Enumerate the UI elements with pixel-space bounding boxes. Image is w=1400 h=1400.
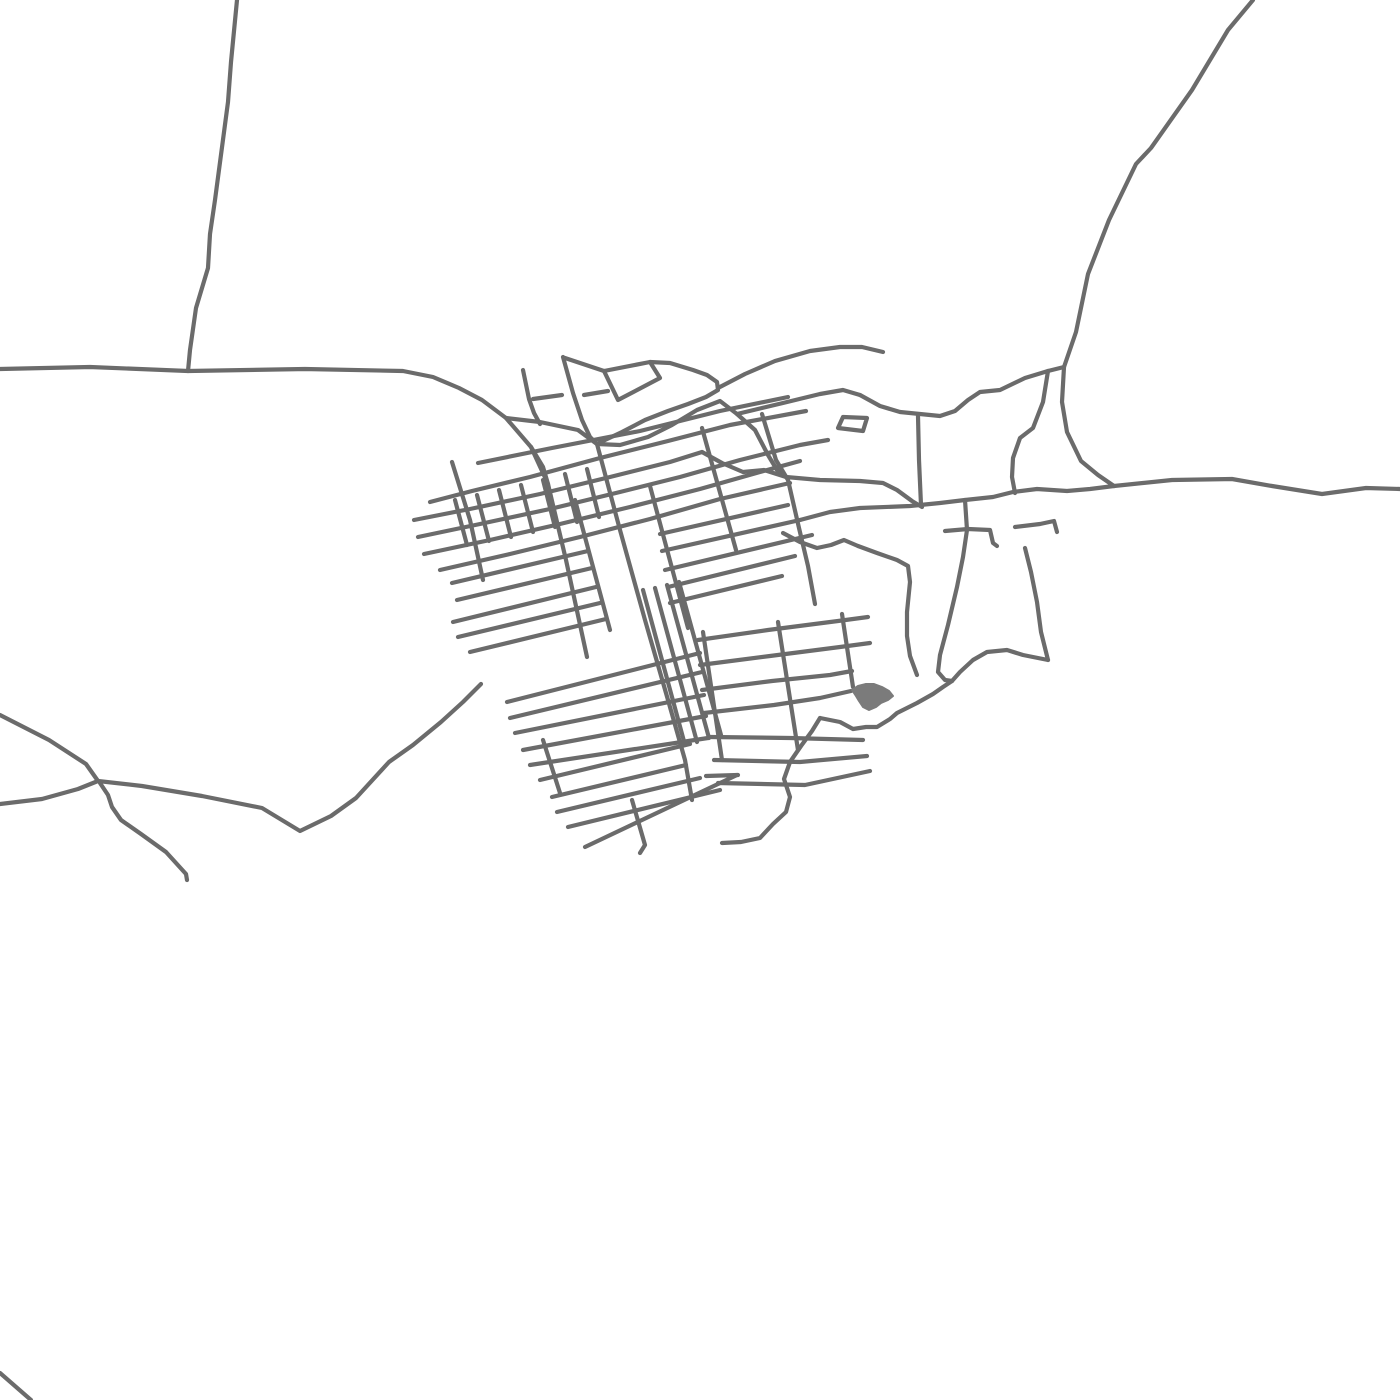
road-se-row-5 — [710, 737, 863, 740]
road-east-curvy-road — [860, 371, 1048, 416]
road-grid-col-block-east — [650, 486, 688, 628]
road-se-row-7 — [718, 771, 870, 785]
road-grid-col-block-west — [575, 500, 610, 630]
road-grid-row-6 — [440, 483, 790, 570]
road-grid-comb-3 — [499, 490, 511, 537]
road-grid-row-11e — [670, 576, 782, 603]
road-grid-comb-2 — [477, 495, 489, 541]
road-grid-comb-7 — [587, 469, 599, 517]
road-grid-row-stub — [706, 775, 738, 776]
road-rural-northeast — [1062, 0, 1253, 486]
road-east-descending-link — [1025, 548, 1048, 660]
map-canvas — [0, 0, 1400, 1400]
pond-water — [852, 684, 893, 710]
road-east-l-street-a — [945, 529, 997, 546]
road-se-column-1 — [703, 632, 722, 760]
road-rural-east-horizontal — [1114, 479, 1400, 494]
road-north-block — [604, 362, 660, 400]
road-main-east-west-street — [800, 486, 1114, 520]
road-east-short-vertical — [918, 416, 921, 505]
road-se-row-3 — [702, 671, 852, 690]
road-north-connector-b — [533, 395, 562, 399]
road-rural-west-horizontal — [0, 367, 548, 484]
road-rural-north-vertical — [188, 0, 237, 371]
road-east-wavy-column — [858, 546, 917, 675]
road-east-column-to-pond — [938, 500, 967, 681]
road-grid-row-9e — [665, 535, 812, 570]
road-grid-row-19 — [557, 778, 700, 812]
road-rural-southwest-corner-branch — [0, 715, 98, 781]
road-rural-bottom-left-stub — [0, 1373, 31, 1400]
road-se-column-3 — [842, 614, 853, 687]
road-pond-northeast-road — [952, 650, 1048, 681]
road-rural-deadend-branch — [100, 783, 187, 880]
road-se-column-2 — [778, 622, 798, 750]
road-east-branch-south — [1012, 371, 1048, 493]
road-north-upper-road — [718, 347, 883, 388]
road-grid-row-1 — [478, 397, 788, 463]
road-grid-comb-4 — [521, 485, 533, 532]
road-grid-row-10e — [668, 556, 795, 587]
road-east-l-street-b — [1015, 521, 1057, 532]
road-northeast-mini-block — [838, 417, 867, 431]
road-north-connector-a — [565, 358, 604, 371]
road-east-junction-spur — [1048, 367, 1064, 371]
road-map — [0, 0, 1400, 1400]
road-se-row-4 — [704, 691, 851, 713]
road-north-connector-c — [584, 391, 608, 395]
road-grid-south-comb — [543, 740, 560, 793]
road-grid-row-18 — [552, 765, 686, 797]
